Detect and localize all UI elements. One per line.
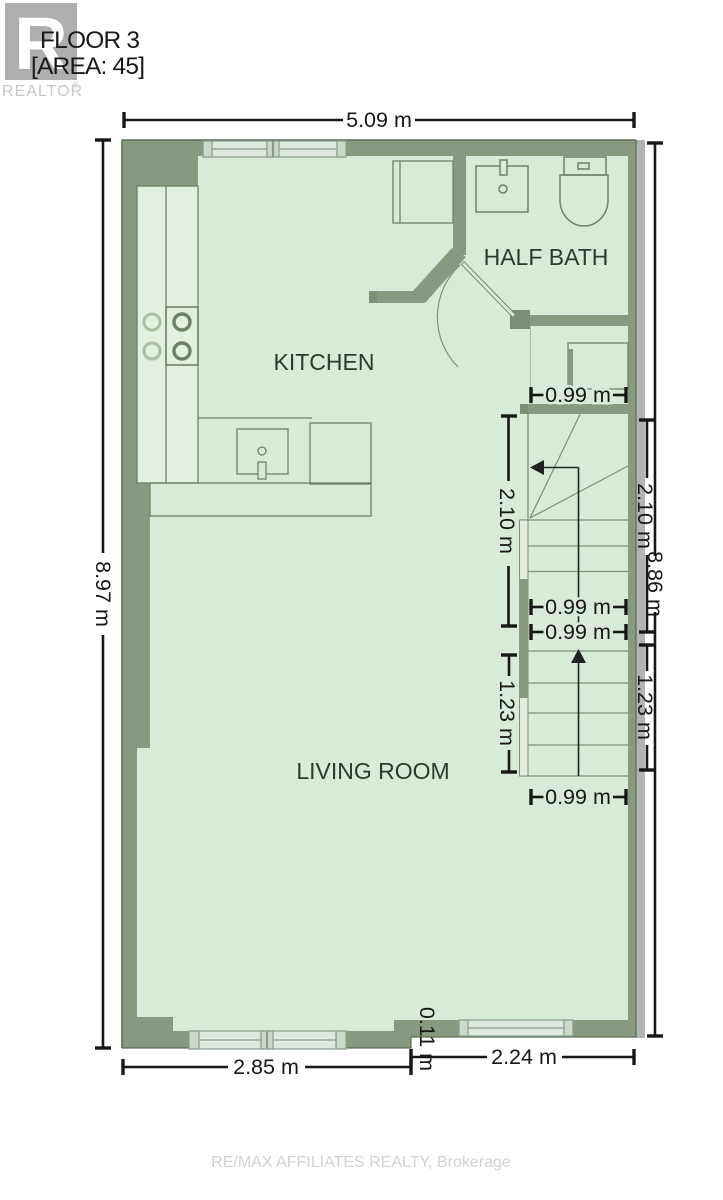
svg-text:8.86 m: 8.86 m [643, 551, 667, 617]
svg-text:FLOOR 3: FLOOR 3 [40, 27, 139, 54]
svg-text:0.99 m: 0.99 m [545, 620, 611, 644]
svg-text:RE/MAX AFFILIATES REALTY, Brok: RE/MAX AFFILIATES REALTY, Brokerage [211, 1154, 511, 1171]
svg-text:LIVING ROOM: LIVING ROOM [296, 758, 449, 784]
svg-text:0.99 m: 0.99 m [545, 595, 611, 619]
svg-text:0.99 m: 0.99 m [545, 383, 611, 407]
svg-text:REALTOR: REALTOR [2, 83, 83, 100]
svg-text:2.24 m: 2.24 m [491, 1045, 557, 1069]
svg-text:KITCHEN: KITCHEN [274, 349, 375, 375]
svg-text:HALF BATH: HALF BATH [484, 244, 609, 270]
svg-text:[AREA: 45]: [AREA: 45] [31, 53, 144, 80]
svg-text:0.11 m: 0.11 m [415, 1007, 439, 1071]
svg-text:0.99 m: 0.99 m [545, 785, 611, 809]
svg-text:8.97 m: 8.97 m [91, 561, 115, 627]
svg-text:®: ® [72, 80, 79, 90]
svg-text:2.85 m: 2.85 m [233, 1055, 299, 1079]
svg-text:1.23 m: 1.23 m [633, 674, 657, 740]
svg-text:5.09 m: 5.09 m [346, 108, 412, 132]
svg-text:2.10 m: 2.10 m [495, 488, 519, 554]
svg-text:2.10 m: 2.10 m [633, 483, 657, 549]
svg-text:1.23 m: 1.23 m [495, 680, 519, 746]
